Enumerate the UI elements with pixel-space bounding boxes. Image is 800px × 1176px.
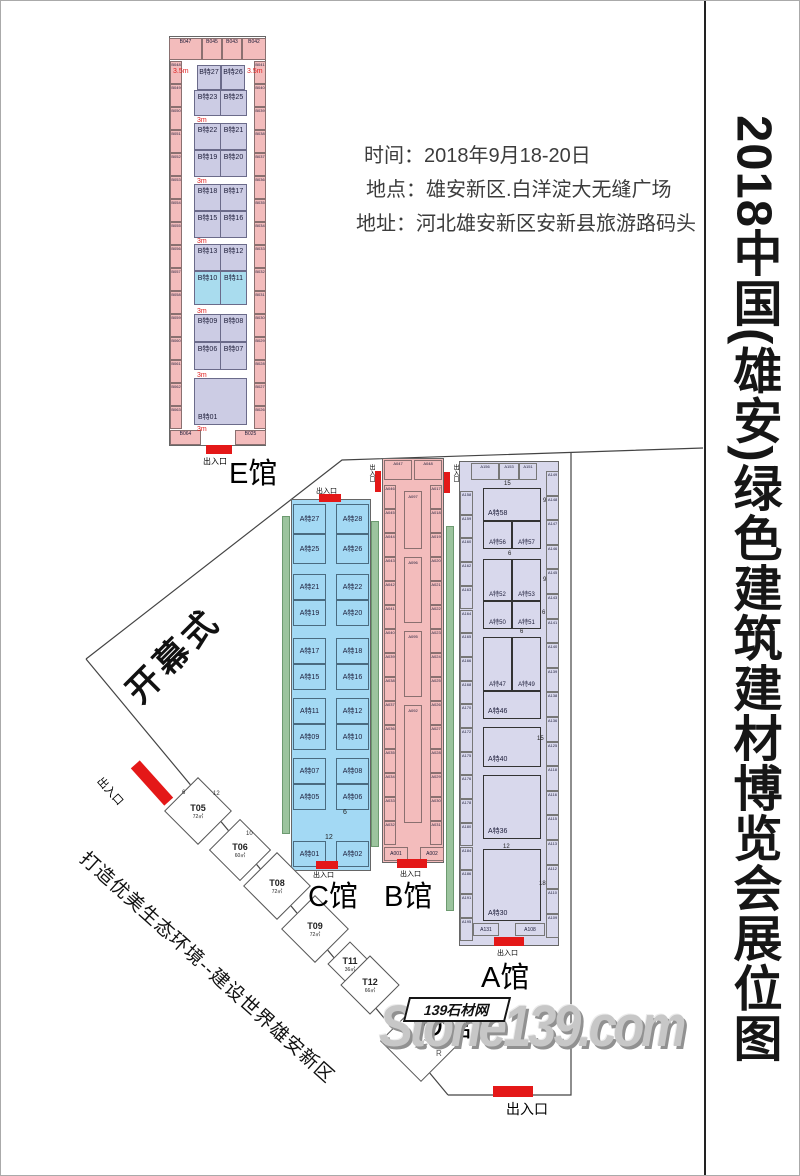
booth: A023 (430, 629, 442, 653)
booth: A162 (460, 562, 473, 586)
booth: A特11 (293, 698, 326, 724)
event-time: 时间：2018年9月18-20日 (356, 139, 696, 173)
booth: A特02 (336, 841, 369, 867)
booth: B029 (254, 337, 266, 360)
booth: A特49 (512, 637, 541, 691)
booth: A031 (430, 821, 442, 845)
booth: A特09 (293, 724, 326, 750)
booth: A028 (430, 749, 442, 773)
booth: B059 (170, 314, 182, 337)
booth: A030 (430, 797, 442, 821)
watermark-site: 139石材网 (422, 1000, 492, 1020)
booth: A特50 (483, 601, 512, 629)
booth: A143 (546, 594, 559, 619)
booth: A151 (519, 463, 537, 480)
dim-label: 12 (325, 834, 333, 841)
booth: B特23 (194, 90, 221, 116)
booth: B056 (170, 245, 182, 268)
booth: B特10 (194, 271, 221, 305)
booth: A特26 (336, 534, 369, 564)
booth: A138 (546, 692, 559, 717)
booth: A029 (430, 773, 442, 797)
dim-label: 12 (213, 791, 220, 797)
booth: A191 (460, 894, 473, 918)
dim-label: 6 (542, 610, 545, 616)
booth: A145 (546, 569, 559, 594)
booth: B042 (242, 38, 266, 60)
booth: A163 (460, 586, 473, 610)
booth: A141 (546, 619, 559, 644)
booth: A022 (430, 605, 442, 629)
booth: A特06 (336, 784, 369, 810)
hall-c-label: C馆 (308, 873, 358, 915)
booth: A032 (384, 821, 396, 845)
booth: B049 (170, 84, 182, 107)
booth: B063 (170, 406, 182, 429)
booth: A158 (460, 491, 473, 515)
dim-label: 6 (508, 551, 511, 557)
entrance-bar (494, 937, 524, 946)
booth: A043 (384, 557, 396, 581)
dim-label: 15 (537, 736, 544, 742)
green-strip (282, 516, 290, 834)
dim-label: 10 (246, 831, 253, 837)
booth: B062 (170, 383, 182, 406)
booth: A特51 (512, 601, 541, 629)
booth: B特15 (194, 211, 221, 238)
booth: A131 (473, 923, 499, 936)
booth: A136 (546, 717, 559, 742)
booth: A特17 (293, 638, 326, 664)
event-info: 时间：2018年9月18-20日 地点：雄安新区.白洋淀大无缝广场 地址：河北雄… (356, 139, 696, 241)
entrance-bar (316, 861, 338, 869)
aisle-width-label: 3m (197, 426, 207, 433)
booth: A116 (546, 791, 559, 816)
booth: B特08 (220, 314, 247, 342)
booth: A特15 (293, 664, 326, 690)
booth: B037 (254, 153, 266, 176)
booth: A特25 (293, 534, 326, 564)
booth: A019 (430, 533, 442, 557)
dim-label: 6 (343, 809, 347, 816)
booth: B特26 (221, 65, 245, 90)
booth: A041 (384, 605, 396, 629)
booth: A037 (384, 701, 396, 725)
entrance-bar (493, 1086, 533, 1097)
booth: A特16 (336, 664, 369, 690)
booth: B026 (254, 406, 266, 429)
booth: A149 (546, 471, 559, 496)
booth: B030 (254, 314, 266, 337)
booth: A160 (460, 538, 473, 562)
booth: A170 (460, 704, 473, 728)
booth: A033 (384, 797, 396, 821)
booth: A特53 (512, 559, 541, 601)
entrance-label: 出入口 (203, 456, 227, 467)
booth: A特40 (483, 727, 541, 767)
booth: B057 (170, 268, 182, 291)
booth: A146 (546, 545, 559, 570)
event-address: 地址：河北雄安新区安新县旅游路码头 (356, 207, 696, 241)
booth: B060 (170, 337, 182, 360)
booth: A特18 (336, 638, 369, 664)
booth: A特19 (293, 600, 326, 626)
booth: B032 (254, 268, 266, 291)
booth: B特19 (194, 150, 221, 177)
booth: A044 (384, 533, 396, 557)
aisle-width-label: 3m (197, 117, 207, 124)
booth: B043 (222, 38, 242, 60)
booth: B050 (170, 107, 182, 130)
event-venue: 地点：雄安新区.白洋淀大无缝广场 (356, 173, 696, 207)
booth: A038 (384, 677, 396, 701)
booth: A042 (384, 581, 396, 605)
poster-title-column: 2018中国(雄安)绿色建筑建材博览会展位图 (704, 1, 800, 1176)
booth: A178 (460, 799, 473, 823)
booth: B特07 (220, 342, 247, 370)
entrance-label: 出入口 (506, 1099, 548, 1119)
booth: A118 (546, 766, 559, 791)
booth: A034 (384, 773, 396, 797)
booth: A139 (546, 668, 559, 693)
expo-floorplan-poster: 2018中国(雄安)绿色建筑建材博览会展位图 时间：2018年9月18-20日 … (0, 0, 800, 1176)
booth: A172 (460, 728, 473, 752)
booth: A195 (460, 918, 473, 942)
dim-label: 9 (543, 498, 546, 504)
dim-label: 15 (504, 481, 511, 487)
booth: A特46 (483, 691, 541, 719)
booth: A特58 (483, 488, 541, 521)
watermark-site-banner: 139石材网 (403, 997, 511, 1022)
booth: A047 (384, 460, 412, 480)
booth: A048 (414, 460, 442, 480)
booth: A018 (430, 509, 442, 533)
dim-label: 18 (539, 881, 546, 887)
booth: A021 (430, 581, 442, 605)
booth: A040 (384, 629, 396, 653)
booth: A特21 (293, 574, 326, 600)
booth: A140 (546, 643, 559, 668)
aisle-width-label: 3m (197, 308, 207, 315)
booth: A165 (460, 633, 473, 657)
booth: B053 (170, 176, 182, 199)
booth: A特57 (512, 521, 541, 549)
booth: A168 (460, 681, 473, 705)
booth: B047 (169, 38, 202, 60)
booth: A039 (384, 653, 396, 677)
booth: A180 (460, 823, 473, 847)
booth: B061 (170, 360, 182, 383)
aisle-width-label: 3.5m (247, 68, 263, 75)
booth: A特10 (336, 724, 369, 750)
booth: B054 (170, 199, 182, 222)
booth: B033 (254, 245, 266, 268)
entrance-label: 出入口 (367, 464, 376, 482)
entrance-label: 出入口 (451, 464, 460, 482)
booth: B特16 (220, 211, 247, 238)
booth: A115 (546, 815, 559, 840)
booth: B特17 (220, 184, 247, 211)
booth: B特11 (220, 271, 247, 305)
booth: B特13 (194, 244, 221, 271)
entrance-bar (444, 472, 450, 493)
booth: B特09 (194, 314, 221, 342)
booth: B特22 (194, 123, 221, 150)
booth: A特28 (336, 504, 369, 534)
booth: A特36 (483, 775, 541, 839)
booth: A特08 (336, 758, 369, 784)
booth: A147 (546, 520, 559, 545)
aisle-width-label: 3m (197, 372, 207, 379)
hall-e-label: E馆 (229, 450, 277, 492)
booth: A025 (430, 677, 442, 701)
booth: A036 (384, 725, 396, 749)
dim-label: 6 (182, 790, 185, 796)
booth: B特01 (194, 378, 247, 425)
dim-label: 9 (543, 577, 546, 583)
booth: A159 (460, 515, 473, 539)
booth: A特47 (483, 637, 512, 691)
booth: B031 (254, 291, 266, 314)
dim-label: 12 (503, 844, 510, 850)
booth: A164 (460, 610, 473, 634)
booth: A148 (546, 496, 559, 521)
booth: A153 (499, 463, 519, 480)
booth: B028 (254, 360, 266, 383)
booth: B045 (202, 38, 222, 60)
booth: A026 (430, 701, 442, 725)
booth: A097 (404, 491, 422, 549)
booth: A166 (460, 657, 473, 681)
booth: A186 (460, 870, 473, 894)
entrance-bar (397, 859, 427, 868)
booth: A特30 (483, 849, 541, 921)
booth: A045 (384, 509, 396, 533)
booth: B特20 (220, 150, 247, 177)
poster-title: 2018中国(雄安)绿色建筑建材博览会展位图 (719, 115, 790, 1063)
booth: A095 (404, 631, 422, 697)
booth: B027 (254, 383, 266, 406)
aisle-width-label: 3.5m (173, 68, 189, 75)
booth: A175 (460, 752, 473, 776)
dim-label: 6 (520, 629, 523, 635)
booth: A特56 (483, 521, 512, 549)
booth: B052 (170, 153, 182, 176)
booth: A特20 (336, 600, 369, 626)
booth: B特18 (194, 184, 221, 211)
booth: A024 (430, 653, 442, 677)
booth: A092 (404, 705, 422, 823)
booth: A108 (515, 923, 545, 936)
booth: B040 (254, 84, 266, 107)
hall-a-label: A馆 (481, 954, 529, 996)
booth: B特27 (197, 65, 221, 90)
booth: A113 (546, 840, 559, 865)
booth: A特07 (293, 758, 326, 784)
booth: B025 (235, 430, 266, 445)
booth: A096 (404, 557, 422, 623)
booth: B055 (170, 222, 182, 245)
booth: B特12 (220, 244, 247, 271)
booth: A125 (546, 742, 559, 767)
booth: A046 (384, 485, 396, 509)
booth: B035 (254, 199, 266, 222)
booth: A特52 (483, 559, 512, 601)
booth: A176 (460, 775, 473, 799)
booth: A112 (546, 865, 559, 890)
booth: B038 (254, 130, 266, 153)
booth: B051 (170, 130, 182, 153)
booth: B034 (254, 222, 266, 245)
booth: A184 (460, 847, 473, 871)
aisle-width-label: 3m (197, 238, 207, 245)
booth: B特21 (220, 123, 247, 150)
booth: A特27 (293, 504, 326, 534)
booth: A特22 (336, 574, 369, 600)
booth: A110 (546, 889, 559, 914)
green-strip (371, 521, 379, 847)
booth: B039 (254, 107, 266, 130)
entrance-label: 出入口 (316, 486, 337, 496)
booth: A027 (430, 725, 442, 749)
booth: A109 (546, 914, 559, 939)
booth: B特25 (220, 90, 247, 116)
booth: A020 (430, 557, 442, 581)
booth: A017 (430, 485, 442, 509)
booth: B特06 (194, 342, 221, 370)
booth: A特05 (293, 784, 326, 810)
booth: A156 (471, 463, 499, 480)
hall-b-label: B馆 (384, 873, 432, 915)
booth: B058 (170, 291, 182, 314)
booth-t-label: T0872㎡ (254, 863, 300, 909)
booth: A035 (384, 749, 396, 773)
booth: A特12 (336, 698, 369, 724)
aisle-width-label: 3m (197, 178, 207, 185)
green-strip (446, 526, 454, 911)
booth: B036 (254, 176, 266, 199)
